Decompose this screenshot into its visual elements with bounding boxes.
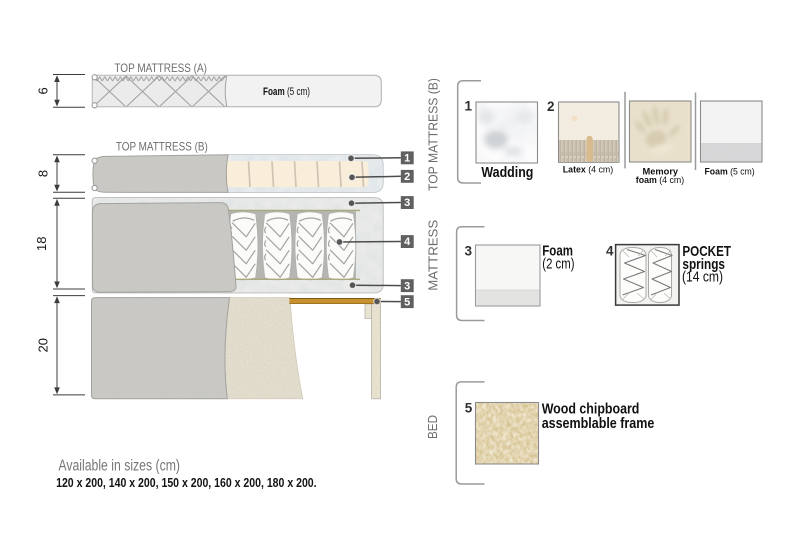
svg-text:(2 cm): (2 cm) bbox=[542, 256, 574, 272]
svg-text:TOP MATTRESS (B): TOP MATTRESS (B) bbox=[116, 139, 208, 153]
svg-text:Foam (5 cm): Foam (5 cm) bbox=[263, 86, 310, 98]
svg-text:20: 20 bbox=[36, 338, 51, 352]
svg-text:(14 cm): (14 cm) bbox=[682, 269, 723, 285]
svg-text:3: 3 bbox=[404, 280, 410, 292]
svg-text:8: 8 bbox=[36, 170, 51, 177]
svg-text:TOP MATTRESS (A): TOP MATTRESS (A) bbox=[114, 61, 207, 75]
svg-text:assemblable frame: assemblable frame bbox=[542, 416, 655, 432]
svg-text:foam (4 cm): foam (4 cm) bbox=[636, 175, 684, 185]
svg-text:5: 5 bbox=[404, 296, 410, 308]
svg-text:3: 3 bbox=[464, 243, 472, 258]
svg-text:Foam (5 cm): Foam (5 cm) bbox=[705, 166, 755, 176]
svg-text:Available in sizes (cm): Available in sizes (cm) bbox=[58, 458, 180, 475]
svg-text:TOP MATTRESS (B): TOP MATTRESS (B) bbox=[427, 78, 441, 191]
svg-text:18: 18 bbox=[34, 237, 49, 251]
svg-text:3: 3 bbox=[404, 197, 410, 209]
svg-text:2: 2 bbox=[547, 99, 555, 114]
svg-text:5: 5 bbox=[465, 400, 473, 415]
svg-text:120 x 200, 140 x 200, 150 x 20: 120 x 200, 140 x 200, 150 x 200, 160 x 2… bbox=[56, 475, 317, 490]
svg-text:4: 4 bbox=[404, 236, 411, 248]
svg-text:4: 4 bbox=[606, 243, 614, 258]
svg-text:1: 1 bbox=[404, 153, 410, 165]
svg-text:Latex (4 cm): Latex (4 cm) bbox=[563, 165, 613, 175]
svg-text:6: 6 bbox=[36, 87, 51, 94]
svg-text:1: 1 bbox=[464, 99, 472, 114]
svg-text:2: 2 bbox=[404, 171, 410, 183]
svg-text:BED: BED bbox=[426, 415, 440, 439]
svg-text:Wadding: Wadding bbox=[481, 165, 533, 181]
svg-text:MATTRESS: MATTRESS bbox=[427, 220, 441, 291]
